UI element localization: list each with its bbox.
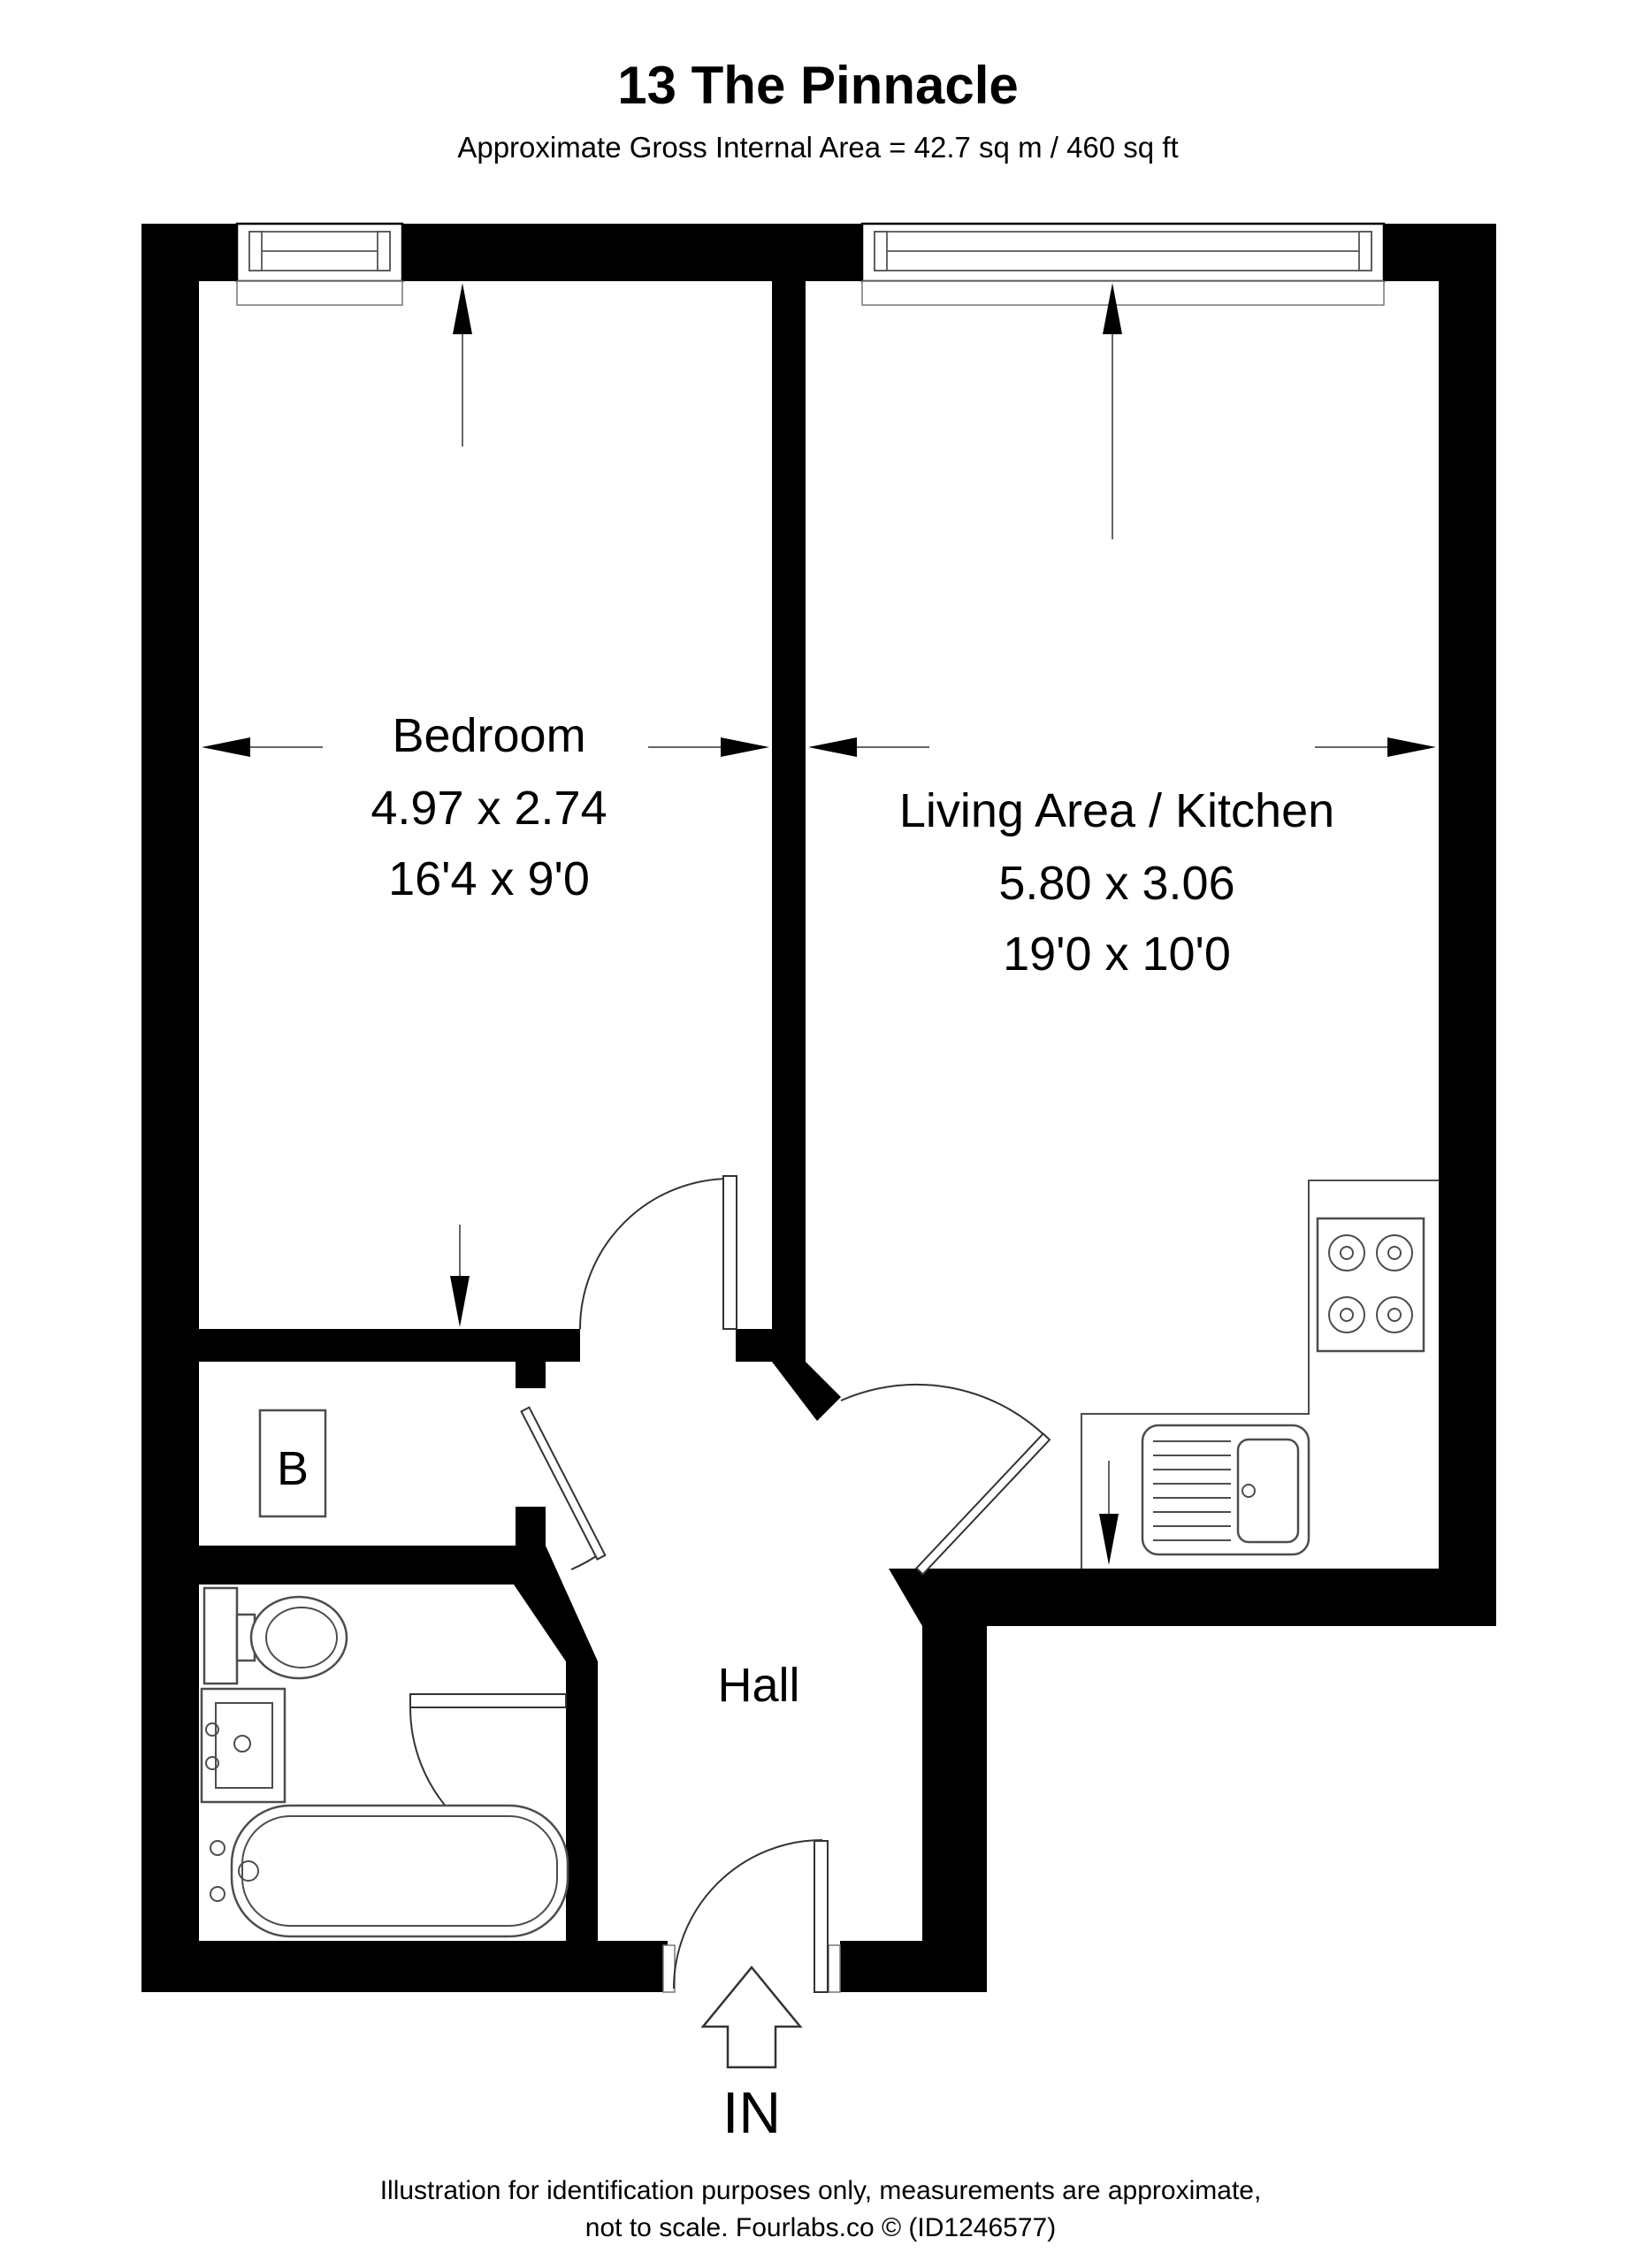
wall-diagonal-stub: [772, 1362, 841, 1421]
bathroom-sink-icon: [202, 1689, 285, 1802]
wall-bathroom-top: [199, 1546, 514, 1585]
dimension-arrow-icon: [721, 737, 769, 757]
dimension-arrow-icon: [453, 283, 472, 334]
wall-bathroom-right: [566, 1661, 598, 1941]
living-window-icon: [862, 224, 1384, 305]
wall-kitchen-bottom: [889, 1569, 1496, 1626]
entrance-label: IN: [722, 2080, 781, 2145]
footer-disclaimer-line2: not to scale. Fourlabs.co © (ID1246577): [585, 2213, 1056, 2242]
wall-bedroom-bottom: [199, 1329, 580, 1362]
bathtub-icon: [210, 1806, 568, 1936]
bedroom-dims-imperial: 16'4 x 9'0: [388, 852, 590, 905]
dimension-arrow-icon: [1387, 737, 1436, 757]
kitchen-sink-icon: [1142, 1425, 1309, 1554]
entrance: IN: [703, 1967, 800, 2145]
hob-icon: [1318, 1218, 1424, 1351]
wall-bottom-left: [141, 1941, 668, 1992]
living-door: [841, 1385, 1050, 1575]
dimension-arrow-icon: [1099, 1514, 1119, 1565]
living-door-leaf-icon: [916, 1433, 1050, 1574]
wall-left: [141, 224, 199, 1992]
wall-bedroom-door-foot: [736, 1329, 806, 1362]
entrance-arrow-icon: [703, 1967, 800, 2067]
toilet-icon: [204, 1588, 347, 1684]
bathroom-door-leaf-icon: [410, 1694, 566, 1707]
living-label: Living Area / Kitchen: [899, 784, 1334, 837]
entry-door-leaf-icon: [814, 1841, 828, 1992]
bedroom-door: [580, 1176, 737, 1329]
living-dims-imperial: 19'0 x 10'0: [1003, 928, 1231, 981]
page-title: 13 The Pinnacle: [617, 56, 1019, 115]
page-subtitle: Approximate Gross Internal Area = 42.7 s…: [457, 131, 1178, 164]
living-dims-metric: 5.80 x 3.06: [998, 857, 1234, 910]
bedroom-dims-metric: 4.97 x 2.74: [371, 782, 607, 835]
closet-b: B: [260, 1410, 325, 1516]
footer-disclaimer-line1: Illustration for identification purposes…: [380, 2176, 1262, 2205]
dimension-arrow-icon: [202, 737, 250, 757]
bedroom-door-leaf-icon: [723, 1176, 737, 1329]
wall-bottom-right: [840, 1941, 987, 1992]
dimension-arrow-icon: [808, 737, 857, 757]
closet-b-label: B: [277, 1442, 309, 1495]
wall-hall-right: [922, 1626, 987, 1941]
dimension-arrows: [202, 283, 1436, 1565]
bedroom-label: Bedroom: [392, 709, 585, 762]
wall-closet-stub-lower: [516, 1507, 546, 1546]
floorplan-page: 13 The Pinnacle Approximate Gross Intern…: [0, 0, 1635, 2264]
wall-closet-stub-upper: [516, 1362, 546, 1388]
dimension-arrow-icon: [450, 1276, 470, 1327]
entry-door-frame-right: [829, 1945, 840, 1992]
walls: [141, 224, 1496, 1992]
wall-bedroom-living-divider: [772, 281, 806, 1329]
wall-right: [1439, 224, 1496, 1626]
bedroom-window-icon: [237, 224, 402, 305]
floorplan-svg: 13 The Pinnacle Approximate Gross Intern…: [0, 0, 1635, 2264]
hall-label: Hall: [717, 1659, 799, 1712]
